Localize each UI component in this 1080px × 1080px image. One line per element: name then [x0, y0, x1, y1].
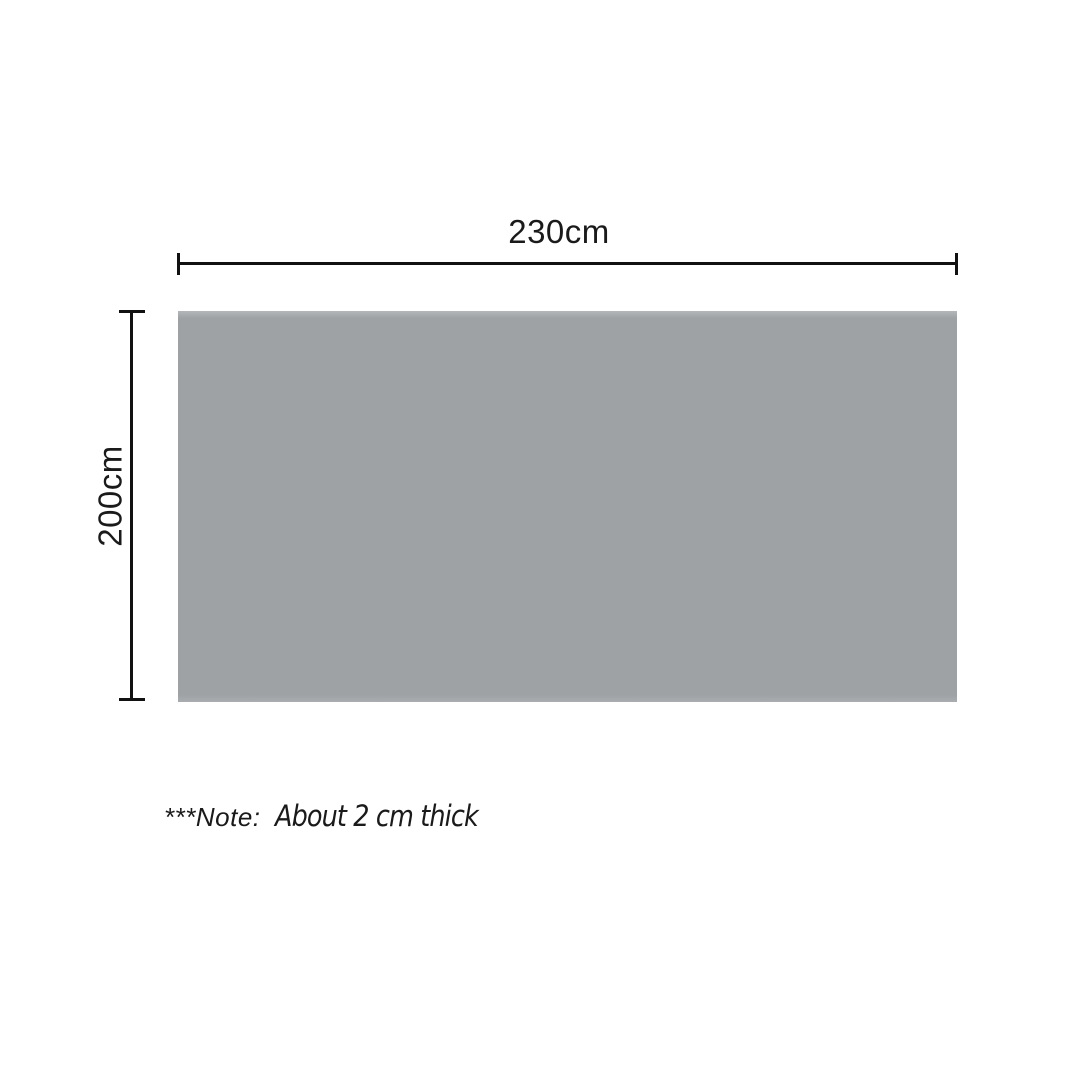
- dimension-diagram: 230cm 200cm ***Note: About 2 cm thick: [0, 0, 1080, 1080]
- height-dimension-bottom-tick: [119, 698, 145, 701]
- note: ***Note: About 2 cm thick: [164, 799, 506, 833]
- product-rectangle: [178, 311, 957, 702]
- note-text: About 2 cm thick: [275, 799, 478, 833]
- width-dimension-line: [177, 262, 958, 265]
- width-dimension-left-tick: [177, 253, 180, 275]
- height-dimension-label: 200cm: [94, 445, 127, 547]
- note-prefix-label: ***Note:: [164, 802, 261, 832]
- width-dimension-label: 230cm: [459, 215, 659, 248]
- width-dimension-right-tick: [955, 253, 958, 275]
- height-dimension-line: [130, 310, 133, 701]
- height-dimension-top-tick: [119, 310, 145, 313]
